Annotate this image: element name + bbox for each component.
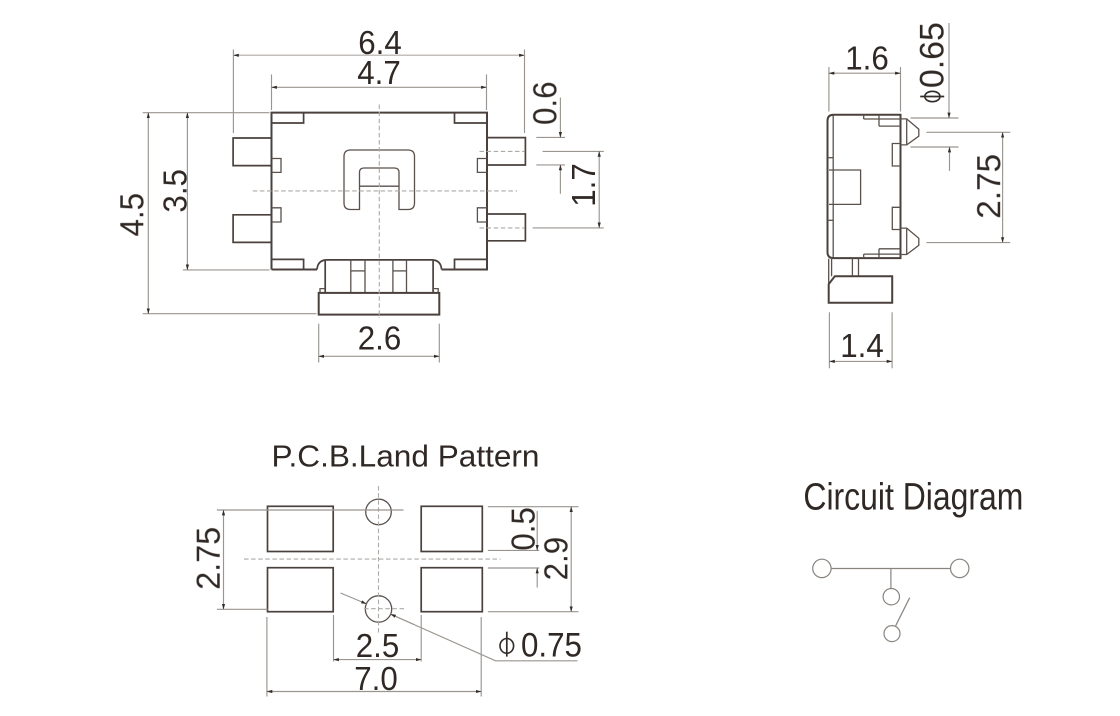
- svg-text:2.6: 2.6: [358, 320, 402, 357]
- svg-text:P.C.B.Land Pattern: P.C.B.Land Pattern: [272, 439, 540, 474]
- svg-text:1.7: 1.7: [565, 163, 602, 207]
- svg-text:2.9: 2.9: [538, 537, 575, 581]
- svg-text:4.7: 4.7: [357, 54, 401, 91]
- svg-text:4.5: 4.5: [114, 193, 151, 237]
- svg-text:2.75: 2.75: [970, 154, 1007, 219]
- svg-text:2.75: 2.75: [190, 527, 227, 590]
- svg-text:1.6: 1.6: [845, 39, 889, 76]
- svg-text:0.6: 0.6: [527, 81, 564, 125]
- svg-text:7.0: 7.0: [354, 660, 398, 697]
- svg-text:1.4: 1.4: [840, 327, 884, 364]
- svg-text:0.75: 0.75: [521, 627, 582, 665]
- svg-text:2.5: 2.5: [356, 627, 400, 664]
- svg-text:Circuit Diagram: Circuit Diagram: [803, 476, 1023, 518]
- svg-text:3.5: 3.5: [156, 169, 193, 213]
- svg-text:0.65: 0.65: [914, 22, 952, 88]
- svg-text:0.5: 0.5: [505, 507, 542, 551]
